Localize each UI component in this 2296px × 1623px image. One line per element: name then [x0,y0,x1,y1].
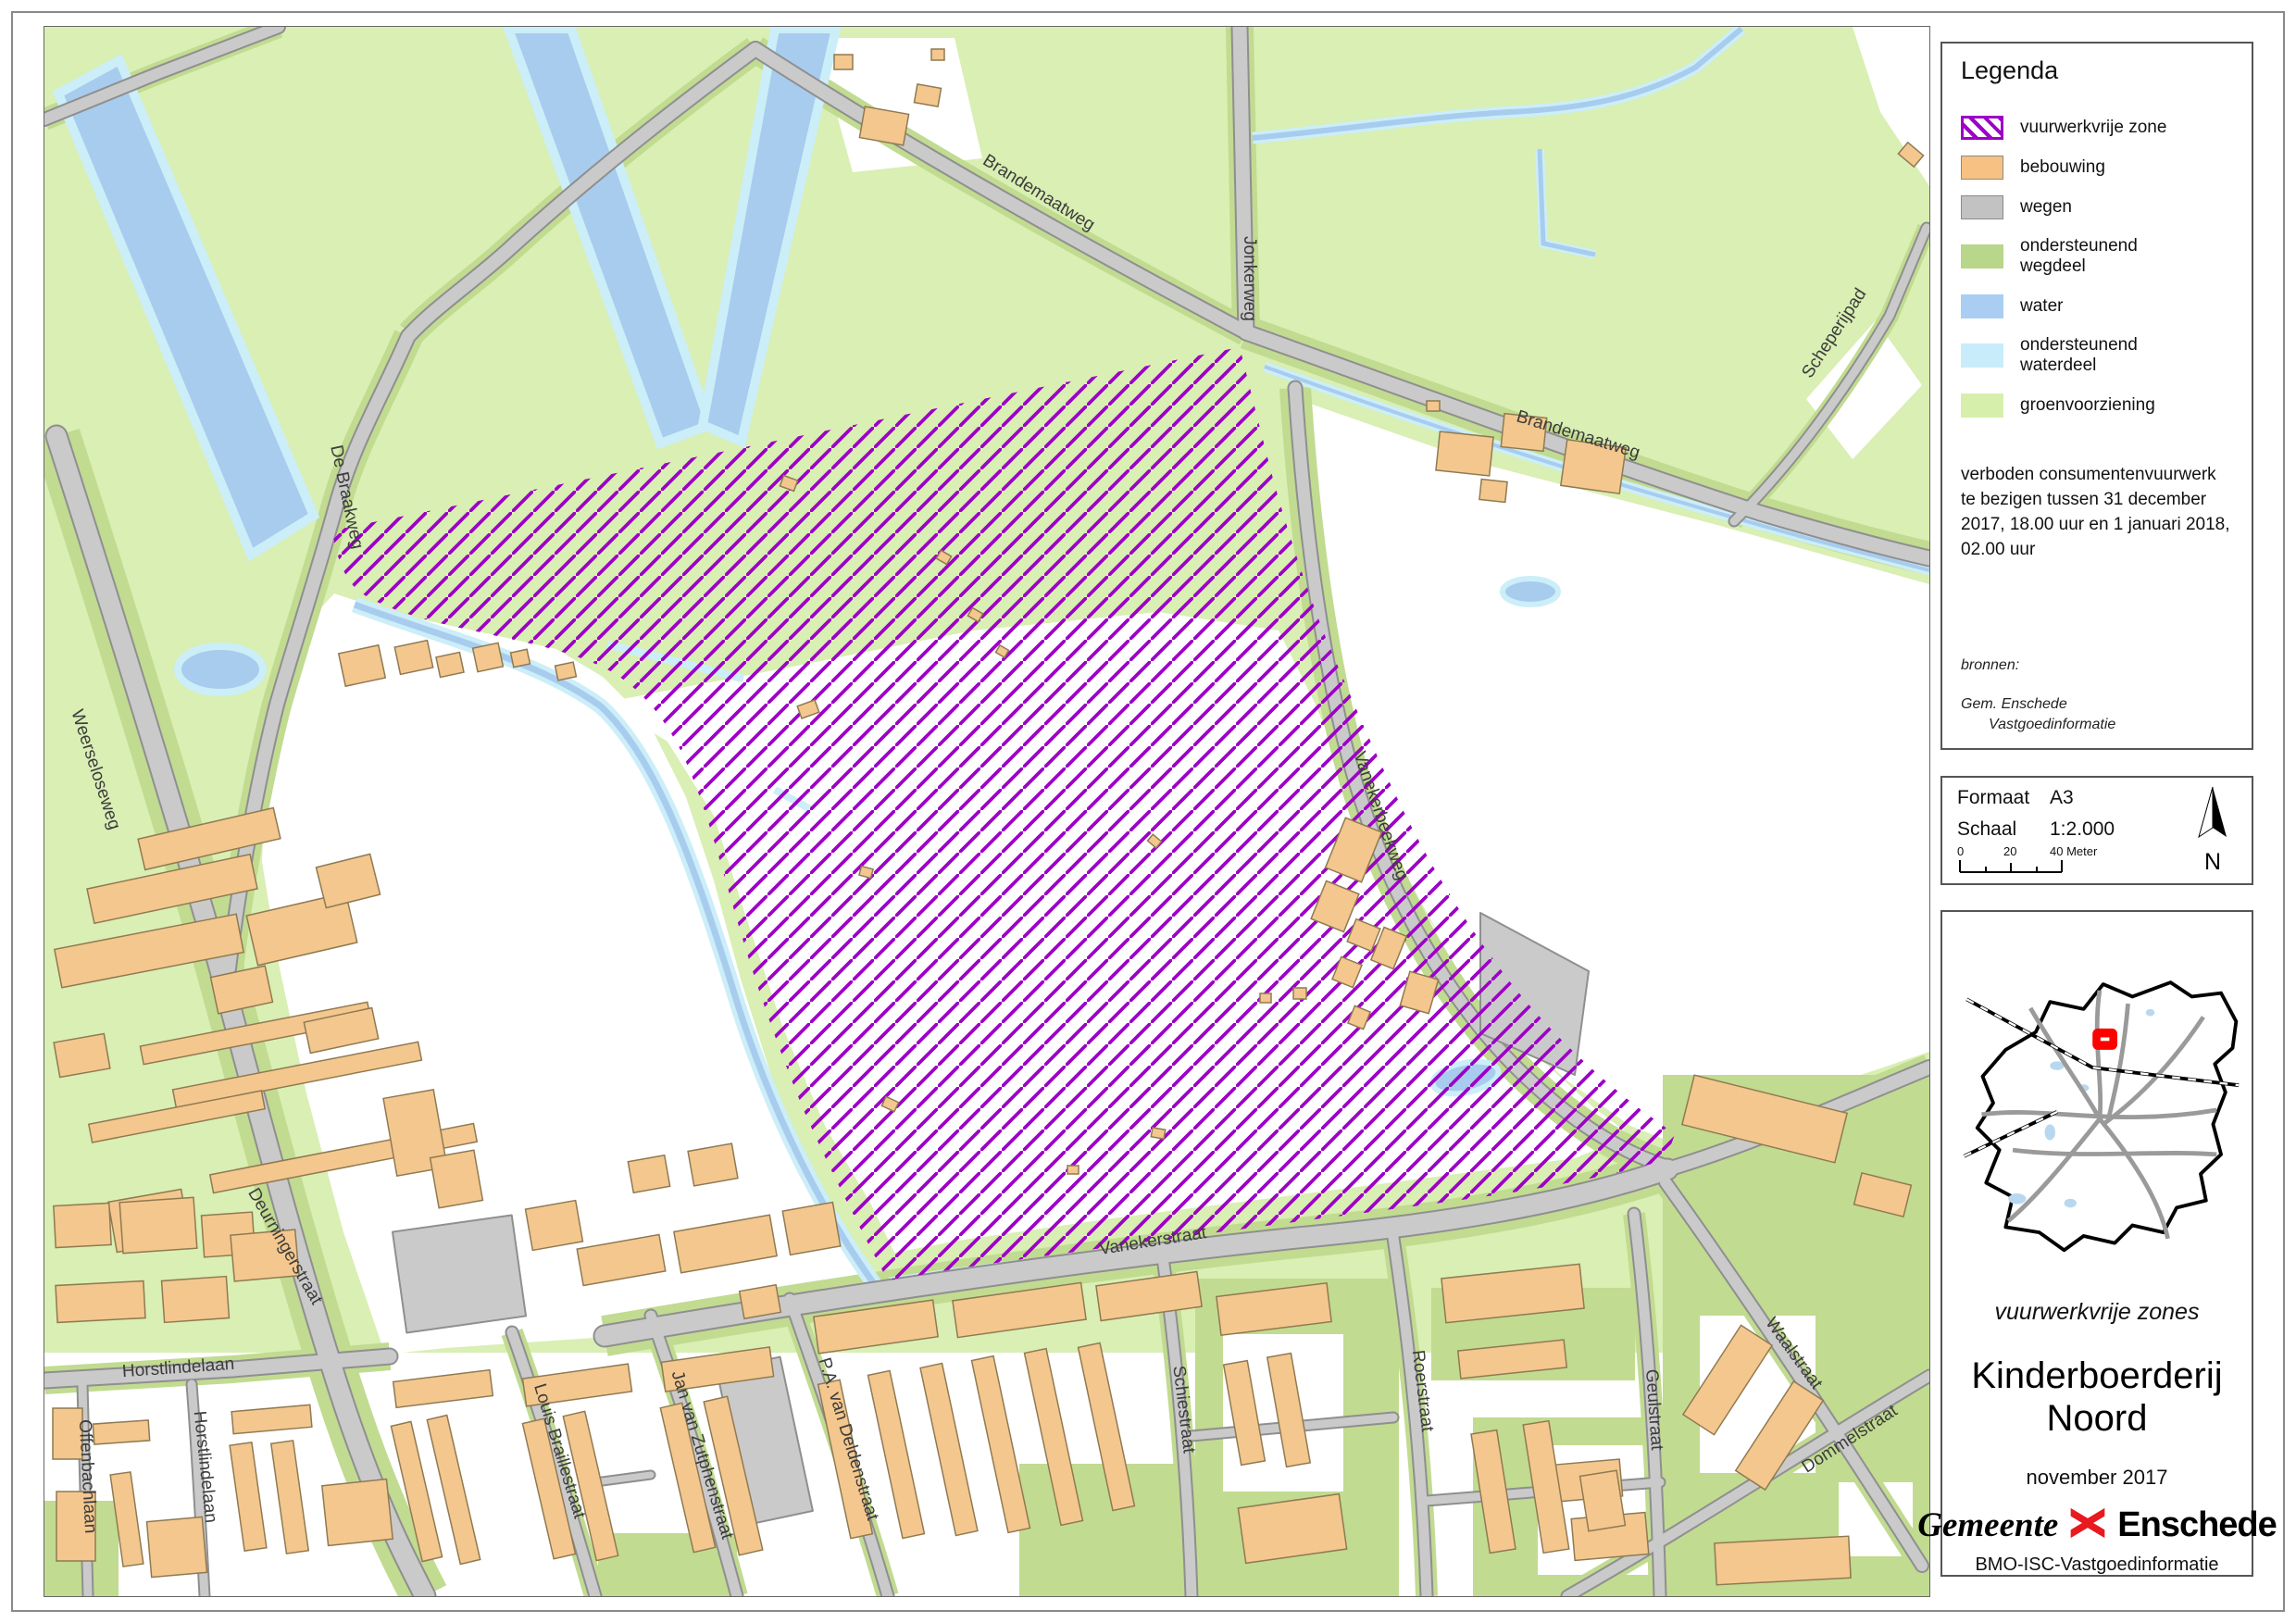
legend-item-label: groenvoorziening [2020,395,2155,416]
map-title: Kinderboerderij Noord [1942,1355,2252,1440]
building [1260,993,1271,1003]
legend-item: vuurwerkvrije zone [1961,107,2252,147]
scalebar-tick-20: 20 [2003,844,2016,858]
scale-bar: 0 20 40 Meter [1955,844,2103,882]
building [1293,988,1306,999]
building [430,1150,483,1207]
logo-text-gemeente: Gemeente [1917,1505,2058,1545]
building [1427,401,1440,411]
building [1151,1128,1166,1139]
legend-item-label: wegen [2020,197,2072,218]
color-swatch [1961,393,2003,418]
scale-label: Schaal [1957,818,2050,841]
legend-item: wegen [1961,187,2252,227]
map-canvas: BrandemaatwegBrandemaatwegJonkerwegSchep… [44,27,1929,1596]
legend-item: ondersteunend waterdeel [1961,326,2252,385]
color-swatch [1961,244,2003,268]
title-panel: vuurwerkvrije zones Kinderboerderij Noor… [1940,910,2253,1577]
logo-text-enschede: Enschede [2117,1505,2277,1545]
building [162,1277,230,1323]
legend-item: water [1961,286,2252,326]
building [555,662,577,680]
format-value: A3 [2050,787,2074,809]
legend-note: verboden consumentenvuurwerk te bezigen … [1961,462,2235,562]
legend-items: vuurwerkvrije zonebebouwingwegenonderste… [1942,107,2252,425]
building [1479,480,1507,503]
building [740,1285,781,1318]
map-sheet: BrandemaatwegBrandemaatwegJonkerwegSchep… [0,0,2296,1623]
building [526,1201,583,1251]
building [834,55,853,69]
legend-item-label: bebouwing [2020,157,2105,178]
building [394,641,432,675]
legend-item-label: ondersteunend waterdeel [2020,335,2138,376]
main-map: BrandemaatwegBrandemaatwegJonkerwegSchep… [44,26,1930,1597]
legend-item-label: ondersteunend wegdeel [2020,236,2138,277]
sources-block: bronnen: Gem. Enschede Vastgoedinformati… [1961,657,2115,735]
legend-item-label: vuurwerkvrije zone [2020,118,2166,138]
color-swatch [1961,156,2003,180]
building [473,643,504,671]
building [1436,431,1493,476]
legend-title: Legenda [1961,56,2252,85]
building [436,653,464,678]
building [782,1203,840,1255]
source-line: Gem. Enschede [1961,694,2115,715]
map-date: november 2017 [1942,1466,2252,1490]
north-label: N [2187,849,2239,876]
street-label: Jonkerweg [1240,236,1259,321]
building [119,1197,197,1253]
building [1715,1536,1851,1585]
building [511,649,530,667]
legend-item: ondersteunend wegdeel [1961,227,2252,286]
color-swatch [1961,343,2003,368]
color-swatch [1961,294,2003,318]
sources-heading: bronnen: [1961,657,2115,674]
format-panel: Formaat A3 Schaal 1:2.000 0 20 40 Meter [1940,776,2253,885]
credit-line: BMO-ISC-Vastgoedinformatie [1942,1554,2252,1576]
legend-item-label: water [2020,296,2063,317]
source-line: Vastgoedinformatie [1989,715,2115,735]
map-series-subtitle: vuurwerkvrije zones [1942,1299,2252,1326]
building [628,1155,669,1192]
building [54,1203,111,1247]
building [688,1143,738,1186]
north-arrow: N [2187,783,2239,876]
building [56,1281,145,1323]
building [1067,1166,1079,1174]
building [859,106,908,145]
legend-item: groenvoorziening [1961,385,2252,425]
building [931,49,944,60]
legend-panel: Legenda vuurwerkvrije zonebebouwingwegen… [1940,42,2253,750]
color-swatch [1961,195,2003,219]
legend-item: bebouwing [1961,147,2252,187]
building [93,1420,149,1444]
building [322,1479,393,1546]
scalebar-tick-0: 0 [1957,844,1964,858]
scale-value: 1:2.000 [2050,818,2115,841]
inset-location-marker [2092,1029,2117,1050]
building [1580,1470,1626,1531]
gemeente-enschede-logo: Gemeente Enschede [1942,1504,2252,1546]
building [914,84,941,106]
hatch-swatch [1961,116,2003,140]
overview-inset-map [1951,925,2243,1300]
format-label: Formaat [1957,787,2050,809]
building [146,1517,206,1577]
scalebar-tick-40: 40 Meter [2050,844,2098,858]
enschede-logo-icon [2067,1504,2108,1546]
